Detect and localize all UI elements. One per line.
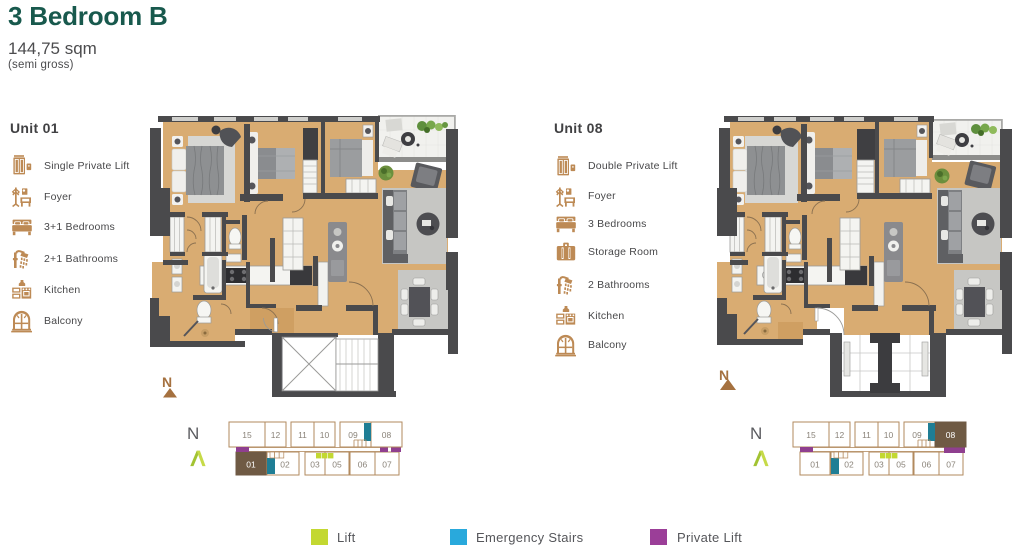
svg-text:N: N — [162, 374, 172, 390]
svg-text:06: 06 — [358, 460, 368, 470]
svg-text:03: 03 — [310, 460, 320, 470]
svg-text:03: 03 — [874, 460, 884, 470]
svg-text:11: 11 — [862, 430, 871, 440]
svg-text:15: 15 — [242, 430, 252, 440]
svg-text:08: 08 — [946, 430, 956, 440]
svg-text:01: 01 — [246, 460, 256, 470]
svg-text:02: 02 — [844, 460, 854, 470]
svg-text:11: 11 — [298, 430, 307, 440]
svg-text:02: 02 — [280, 460, 290, 470]
svg-text:07: 07 — [382, 460, 392, 470]
svg-text:07: 07 — [946, 460, 956, 470]
svg-text:05: 05 — [896, 460, 906, 470]
svg-text:10: 10 — [320, 430, 330, 440]
svg-text:15: 15 — [806, 430, 816, 440]
svg-text:05: 05 — [332, 460, 342, 470]
svg-text:09: 09 — [912, 430, 922, 440]
svg-text:12: 12 — [271, 430, 281, 440]
svg-text:06: 06 — [922, 460, 932, 470]
svg-text:09: 09 — [348, 430, 358, 440]
svg-text:01: 01 — [810, 460, 820, 470]
svg-text:12: 12 — [835, 430, 845, 440]
svg-text:10: 10 — [884, 430, 894, 440]
svg-text:08: 08 — [382, 430, 392, 440]
